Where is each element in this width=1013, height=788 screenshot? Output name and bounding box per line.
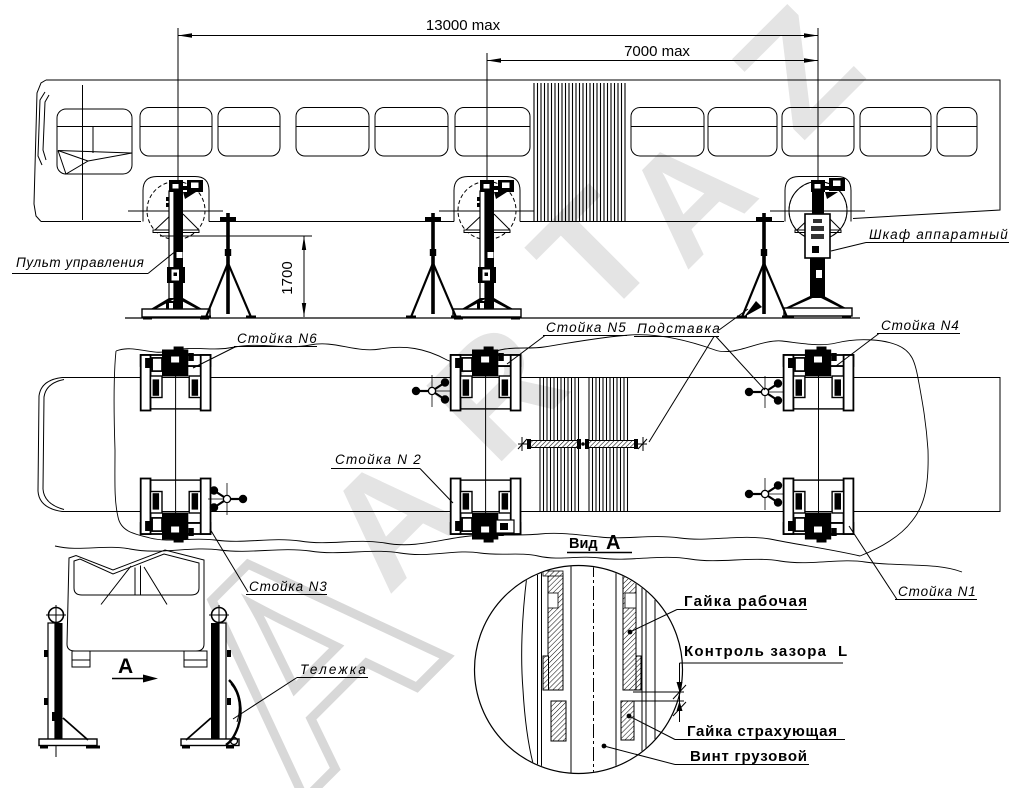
svg-text:Стойка N5: Стойка N5	[546, 320, 626, 335]
svg-text:А: А	[606, 532, 620, 554]
svg-text:1700: 1700	[279, 261, 296, 294]
svg-text:Гайка страхующая: Гайка страхующая	[687, 723, 837, 740]
svg-text:Гайка рабочая: Гайка рабочая	[684, 593, 807, 610]
svg-text:Пульт управления: Пульт управления	[16, 255, 144, 270]
svg-text:Тележка: Тележка	[300, 662, 366, 677]
svg-text:L: L	[838, 643, 847, 660]
svg-text:Вид: Вид	[569, 536, 598, 552]
svg-text:Стойка N3: Стойка N3	[249, 579, 327, 594]
svg-text:А: А	[118, 655, 133, 678]
svg-text:7000 max: 7000 max	[624, 43, 690, 60]
svg-text:Стойка N1: Стойка N1	[898, 584, 976, 599]
svg-text:Стойка N 2: Стойка N 2	[335, 452, 421, 467]
svg-text:Шкаф аппаратный: Шкаф аппаратный	[869, 227, 1008, 242]
svg-text:Контроль зазора: Контроль зазора	[684, 643, 827, 660]
svg-text:Стойка N4: Стойка N4	[881, 318, 959, 333]
svg-text:13000 max: 13000 max	[426, 17, 501, 34]
svg-text:Подставка: Подставка	[637, 321, 720, 336]
svg-text:Винт грузовой: Винт грузовой	[690, 748, 807, 765]
svg-text:Стойка N6: Стойка N6	[237, 331, 317, 346]
